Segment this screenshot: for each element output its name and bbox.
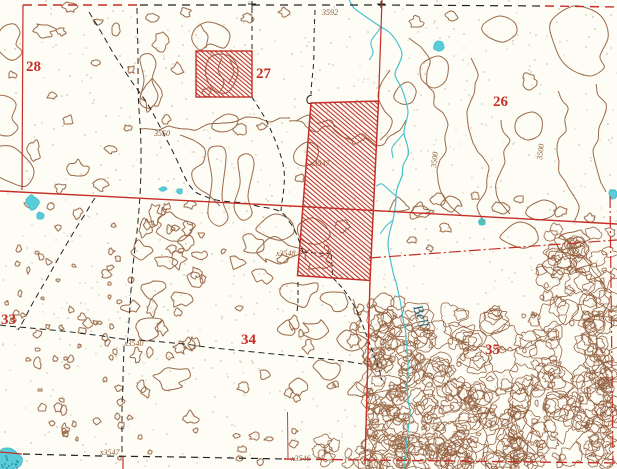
svg-text:3592: 3592 <box>321 8 338 17</box>
svg-text:x3540: x3540 <box>123 339 144 348</box>
svg-text:x3548: x3548 <box>275 249 296 258</box>
svg-text:33: 33 <box>1 312 16 328</box>
svg-text:27: 27 <box>256 66 272 82</box>
svg-text:26: 26 <box>493 94 509 110</box>
svg-text:3550: 3550 <box>153 129 170 138</box>
svg-text:28: 28 <box>26 59 41 75</box>
svg-text:35: 35 <box>485 342 500 358</box>
svg-text:x3546: x3546 <box>290 454 311 463</box>
svg-text:x3547: x3547 <box>309 159 331 168</box>
svg-text:x3547: x3547 <box>99 448 121 457</box>
svg-text:34: 34 <box>241 332 257 348</box>
